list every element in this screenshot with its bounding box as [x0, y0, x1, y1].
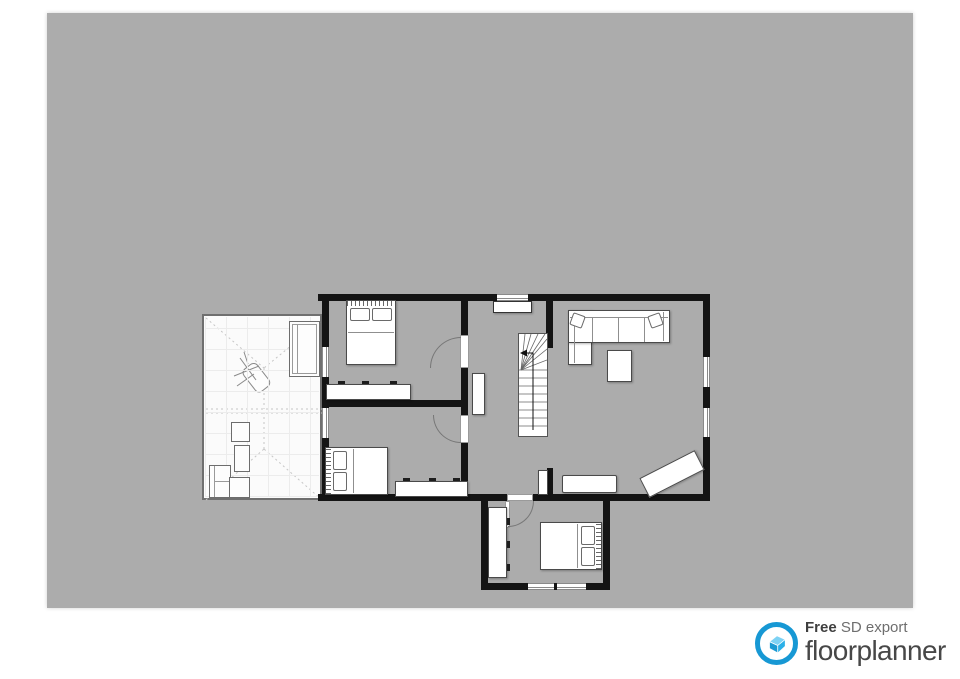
sofa-cushion-line: [214, 481, 230, 482]
door-leaf-bedroom-bottom: [460, 415, 469, 443]
wall-annex-right: [603, 500, 610, 590]
logo-tagline: Free SD export: [805, 620, 946, 635]
bed-top-bedroom: [346, 300, 396, 365]
pillow: [333, 451, 347, 470]
window-annex-left: [528, 583, 554, 590]
logo-text: Free SD export floorplanner: [805, 620, 946, 665]
pillow: [581, 526, 595, 545]
wall-right-mid: [703, 387, 710, 408]
sofa-armrest-line: [663, 312, 664, 341]
window-bedroom-top-left: [322, 347, 329, 377]
floorplanner-house-icon: [755, 622, 798, 665]
wall-hall-bedrooms-mid: [461, 368, 468, 415]
dresser-top-bedroom: [326, 384, 411, 400]
wall-annex-bottom-c: [586, 583, 610, 590]
wall-annex-left: [481, 500, 488, 590]
dresser-knob: [453, 478, 460, 481]
sideboard-divider: [297, 324, 298, 374]
staircase-treads: [519, 334, 547, 436]
bed-annex: [540, 522, 602, 570]
coffee-table: [607, 350, 632, 382]
sofa-cushion-line: [618, 318, 619, 342]
bed-bottom-bedroom: [325, 447, 388, 495]
hall-cabinet: [472, 373, 485, 415]
blanket-fold: [577, 524, 578, 568]
terrace-sideboard-inner: [292, 324, 317, 374]
terrace-side-table-1: [231, 422, 250, 442]
staircase: [518, 333, 548, 437]
dresser-bottom-bedroom: [395, 481, 468, 497]
wall-annex-bottom-a: [481, 583, 528, 590]
wardrobe-knob: [507, 564, 510, 571]
dresser-knob: [403, 478, 410, 481]
pillow: [372, 308, 392, 321]
sofa-cushion-line: [592, 318, 593, 342]
export-page: Free SD export floorplanner: [0, 0, 960, 679]
pillow: [333, 472, 347, 491]
living-sideboard: [562, 475, 617, 493]
wall-right-upper: [703, 294, 710, 357]
pillow: [350, 308, 370, 321]
free-label: Free: [805, 619, 837, 636]
blanket-fold: [353, 449, 354, 493]
window-bedroom-bottom-left: [322, 408, 329, 438]
export-label: SD export: [837, 619, 908, 636]
headboard: [347, 301, 395, 306]
wall-bedroom-divider: [322, 400, 461, 407]
brand-name: floorplanner: [805, 637, 946, 665]
doorway-annex: [507, 494, 533, 501]
dresser-knob: [338, 381, 345, 384]
plan-canvas: [47, 13, 913, 608]
floorplanner-logo: Free SD export floorplanner: [755, 620, 946, 665]
room-attic-terrace: [202, 314, 322, 500]
wall-top-right: [528, 294, 710, 301]
pillow: [581, 547, 595, 566]
blanket-fold: [348, 332, 394, 333]
dresser-knob: [362, 381, 369, 384]
wall-left-upper: [322, 294, 329, 347]
wardrobe-annex: [488, 507, 507, 578]
headboard: [326, 448, 331, 494]
door-leaf-bedroom-top: [460, 335, 469, 368]
dresser-knob: [390, 381, 397, 384]
hall-small-cabinet: [538, 470, 548, 495]
wardrobe-knob: [507, 518, 510, 525]
sofa-cushion-line: [644, 318, 645, 342]
window-hall-top: [497, 294, 528, 301]
terrace-armchair: [234, 445, 250, 472]
headboard: [596, 523, 601, 569]
window-annex-right: [557, 583, 586, 590]
wall-hall-bedrooms-upper: [461, 294, 468, 335]
wall-bottom-right: [533, 494, 710, 501]
window-living-right-upper: [703, 357, 710, 387]
dresser-knob: [429, 478, 436, 481]
terrace-side-table-2: [229, 477, 250, 498]
wall-top-left: [318, 294, 497, 301]
wardrobe-knob: [507, 541, 510, 548]
window-living-right-lower: [703, 408, 710, 437]
hall-sideboard: [493, 301, 532, 313]
